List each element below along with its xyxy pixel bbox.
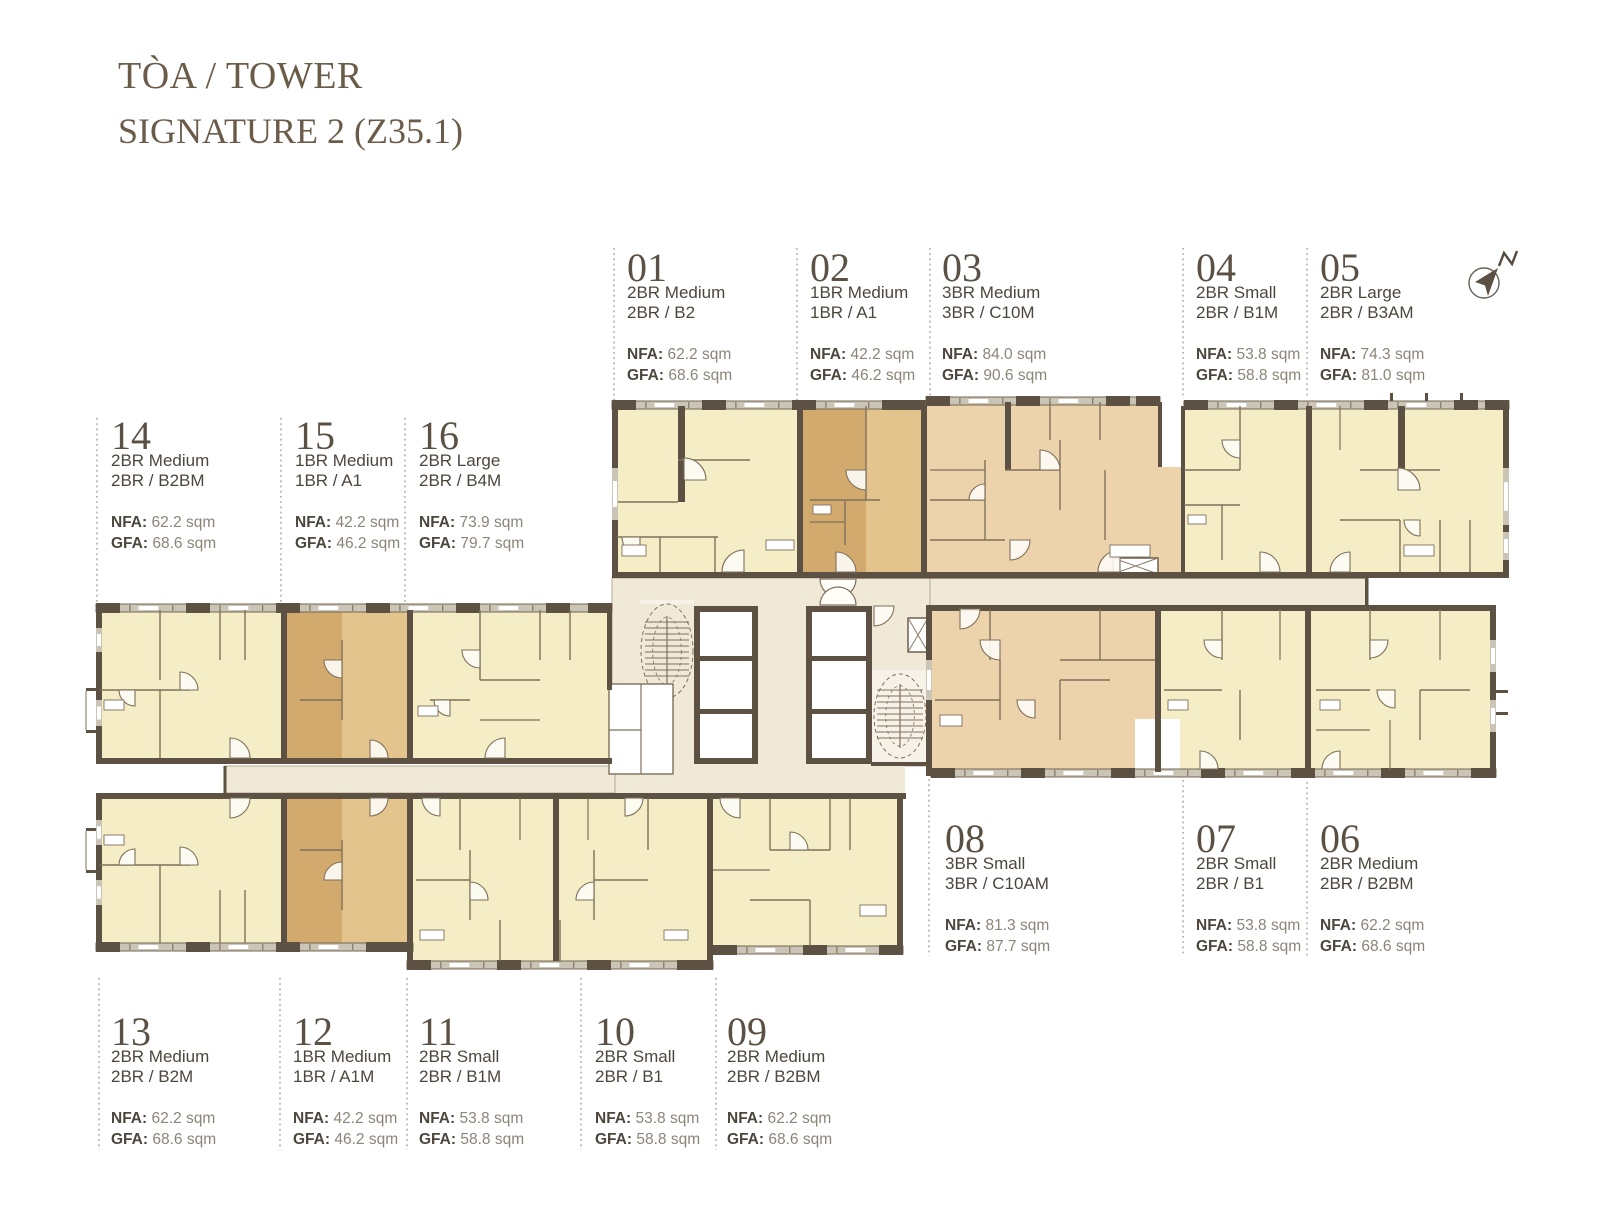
svg-text:1BR / A1: 1BR / A1 xyxy=(810,303,877,322)
svg-text:GFA: 68.6 sqm: GFA: 68.6 sqm xyxy=(727,1131,832,1148)
svg-text:NFA: 53.8 sqm: NFA: 53.8 sqm xyxy=(1196,917,1300,934)
svg-text:GFA: 68.6 sqm: GFA: 68.6 sqm xyxy=(627,367,732,384)
svg-text:2BR / B2M: 2BR / B2M xyxy=(111,1067,193,1086)
svg-text:GFA: 79.7 sqm: GFA: 79.7 sqm xyxy=(419,535,524,552)
svg-text:3BR Small: 3BR Small xyxy=(945,854,1025,873)
svg-text:NFA: 42.2 sqm: NFA: 42.2 sqm xyxy=(295,514,399,531)
svg-text:NFA: 42.2 sqm: NFA: 42.2 sqm xyxy=(293,1110,397,1127)
svg-text:2BR / B3AM: 2BR / B3AM xyxy=(1320,303,1414,322)
svg-text:NFA: 84.0 sqm: NFA: 84.0 sqm xyxy=(942,346,1046,363)
svg-text:GFA: 58.8 sqm: GFA: 58.8 sqm xyxy=(595,1131,700,1148)
svg-text:GFA: 46.2 sqm: GFA: 46.2 sqm xyxy=(293,1131,398,1148)
svg-text:GFA: 58.8 sqm: GFA: 58.8 sqm xyxy=(1196,367,1301,384)
svg-text:2BR Medium: 2BR Medium xyxy=(727,1047,825,1066)
svg-text:1BR Medium: 1BR Medium xyxy=(295,451,393,470)
svg-text:3BR Medium: 3BR Medium xyxy=(942,283,1040,302)
svg-text:GFA: 68.6 sqm: GFA: 68.6 sqm xyxy=(111,1131,216,1148)
svg-text:NFA: 62.2 sqm: NFA: 62.2 sqm xyxy=(1320,917,1424,934)
svg-text:2BR / B2: 2BR / B2 xyxy=(627,303,695,322)
svg-text:GFA: 46.2 sqm: GFA: 46.2 sqm xyxy=(810,367,915,384)
svg-text:3BR / C10M: 3BR / C10M xyxy=(942,303,1035,322)
svg-text:TÒA / TOWER: TÒA / TOWER xyxy=(118,55,363,97)
svg-text:GFA: 46.2 sqm: GFA: 46.2 sqm xyxy=(295,535,400,552)
svg-text:1BR Medium: 1BR Medium xyxy=(293,1047,391,1066)
svg-text:1BR / A1: 1BR / A1 xyxy=(295,471,362,490)
svg-text:NFA: 62.2 sqm: NFA: 62.2 sqm xyxy=(627,346,731,363)
svg-text:NFA: 74.3 sqm: NFA: 74.3 sqm xyxy=(1320,346,1424,363)
svg-text:2BR / B1: 2BR / B1 xyxy=(595,1067,663,1086)
svg-text:NFA: 62.2 sqm: NFA: 62.2 sqm xyxy=(111,514,215,531)
svg-text:GFA: 81.0 sqm: GFA: 81.0 sqm xyxy=(1320,367,1425,384)
svg-text:SIGNATURE 2 (Z35.1): SIGNATURE 2 (Z35.1) xyxy=(118,111,463,151)
svg-text:GFA: 58.8 sqm: GFA: 58.8 sqm xyxy=(419,1131,524,1148)
svg-text:2BR Medium: 2BR Medium xyxy=(1320,854,1418,873)
svg-text:2BR Small: 2BR Small xyxy=(419,1047,499,1066)
svg-text:2BR Large: 2BR Large xyxy=(1320,283,1401,302)
svg-text:2BR Medium: 2BR Medium xyxy=(111,1047,209,1066)
svg-text:2BR Small: 2BR Small xyxy=(595,1047,675,1066)
svg-text:1BR Medium: 1BR Medium xyxy=(810,283,908,302)
svg-text:1BR / A1M: 1BR / A1M xyxy=(293,1067,374,1086)
svg-text:NFA: 62.2 sqm: NFA: 62.2 sqm xyxy=(727,1110,831,1127)
svg-text:GFA: 90.6 sqm: GFA: 90.6 sqm xyxy=(942,367,1047,384)
svg-text:2BR Small: 2BR Small xyxy=(1196,283,1276,302)
svg-text:2BR / B1M: 2BR / B1M xyxy=(419,1067,501,1086)
svg-text:NFA: 53.8 sqm: NFA: 53.8 sqm xyxy=(1196,346,1300,363)
svg-text:2BR / B2BM: 2BR / B2BM xyxy=(1320,874,1414,893)
svg-text:NFA: 53.8 sqm: NFA: 53.8 sqm xyxy=(595,1110,699,1127)
svg-text:GFA: 58.8 sqm: GFA: 58.8 sqm xyxy=(1196,938,1301,955)
svg-text:NFA: 62.2 sqm: NFA: 62.2 sqm xyxy=(111,1110,215,1127)
svg-text:2BR / B2BM: 2BR / B2BM xyxy=(727,1067,821,1086)
svg-text:2BR Small: 2BR Small xyxy=(1196,854,1276,873)
svg-text:2BR Medium: 2BR Medium xyxy=(111,451,209,470)
svg-text:NFA: 53.8 sqm: NFA: 53.8 sqm xyxy=(419,1110,523,1127)
svg-text:GFA: 68.6 sqm: GFA: 68.6 sqm xyxy=(1320,938,1425,955)
svg-text:NFA: 73.9 sqm: NFA: 73.9 sqm xyxy=(419,514,523,531)
svg-text:NFA: 81.3 sqm: NFA: 81.3 sqm xyxy=(945,917,1049,934)
svg-text:2BR / B4M: 2BR / B4M xyxy=(419,471,501,490)
svg-text:2BR / B1M: 2BR / B1M xyxy=(1196,303,1278,322)
svg-text:2BR / B1: 2BR / B1 xyxy=(1196,874,1264,893)
svg-text:NFA: 42.2 sqm: NFA: 42.2 sqm xyxy=(810,346,914,363)
svg-text:2BR Large: 2BR Large xyxy=(419,451,500,470)
svg-text:GFA: 87.7 sqm: GFA: 87.7 sqm xyxy=(945,938,1050,955)
svg-text:3BR / C10AM: 3BR / C10AM xyxy=(945,874,1049,893)
svg-text:GFA: 68.6 sqm: GFA: 68.6 sqm xyxy=(111,535,216,552)
svg-text:2BR / B2BM: 2BR / B2BM xyxy=(111,471,205,490)
svg-text:2BR Medium: 2BR Medium xyxy=(627,283,725,302)
